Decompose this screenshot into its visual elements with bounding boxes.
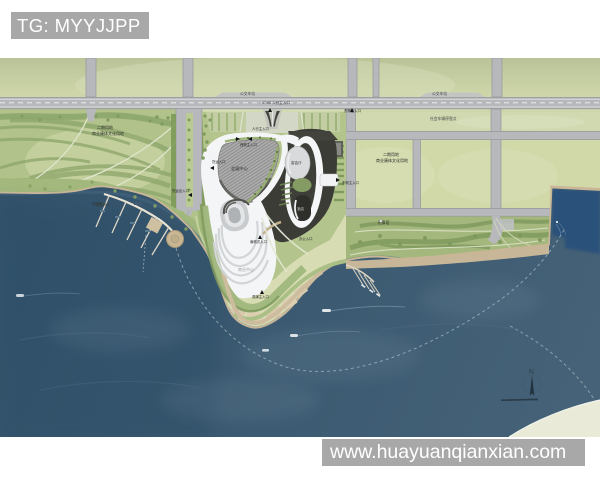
svg-text:货运出入口: 货运出入口 (172, 188, 189, 193)
svg-text:商业康体文化用地: 商业康体文化用地 (376, 157, 408, 163)
svg-text:商业康体文化用地: 商业康体文化用地 (92, 130, 124, 136)
svg-text:二期用地: 二期用地 (383, 151, 399, 157)
svg-text:游艇码头: 游艇码头 (96, 202, 111, 207)
svg-text:南侧次入口: 南侧次入口 (250, 239, 267, 244)
svg-text:观演主入口: 观演主入口 (252, 294, 269, 299)
svg-text:酒店: 酒店 (297, 206, 305, 211)
svg-text:宴会厅: 宴会厅 (291, 160, 302, 165)
svg-text:东侧主入口: 东侧主入口 (342, 180, 359, 185)
svg-text:货运入口: 货运入口 (212, 159, 226, 164)
svg-text:公交车站: 公交车站 (432, 91, 447, 96)
svg-text:东侧主入口: 东侧主入口 (344, 108, 361, 113)
svg-text:会展中心: 会展中心 (231, 165, 249, 172)
svg-text:纪事塔: 纪事塔 (378, 220, 390, 225)
svg-text:公交车站: 公交车站 (240, 91, 255, 96)
svg-text:二期用地: 二期用地 (97, 124, 113, 130)
svg-text:商业中心: 商业中心 (238, 266, 254, 272)
svg-text:人行主入口: 人行主入口 (252, 126, 269, 131)
svg-text:西侧主入口: 西侧主入口 (240, 142, 257, 147)
svg-text:47.00 人行主入口: 47.00 人行主入口 (262, 100, 290, 105)
svg-text:办公入口: 办公入口 (299, 236, 313, 241)
svg-text:社会车辆停靠点: 社会车辆停靠点 (430, 116, 457, 121)
